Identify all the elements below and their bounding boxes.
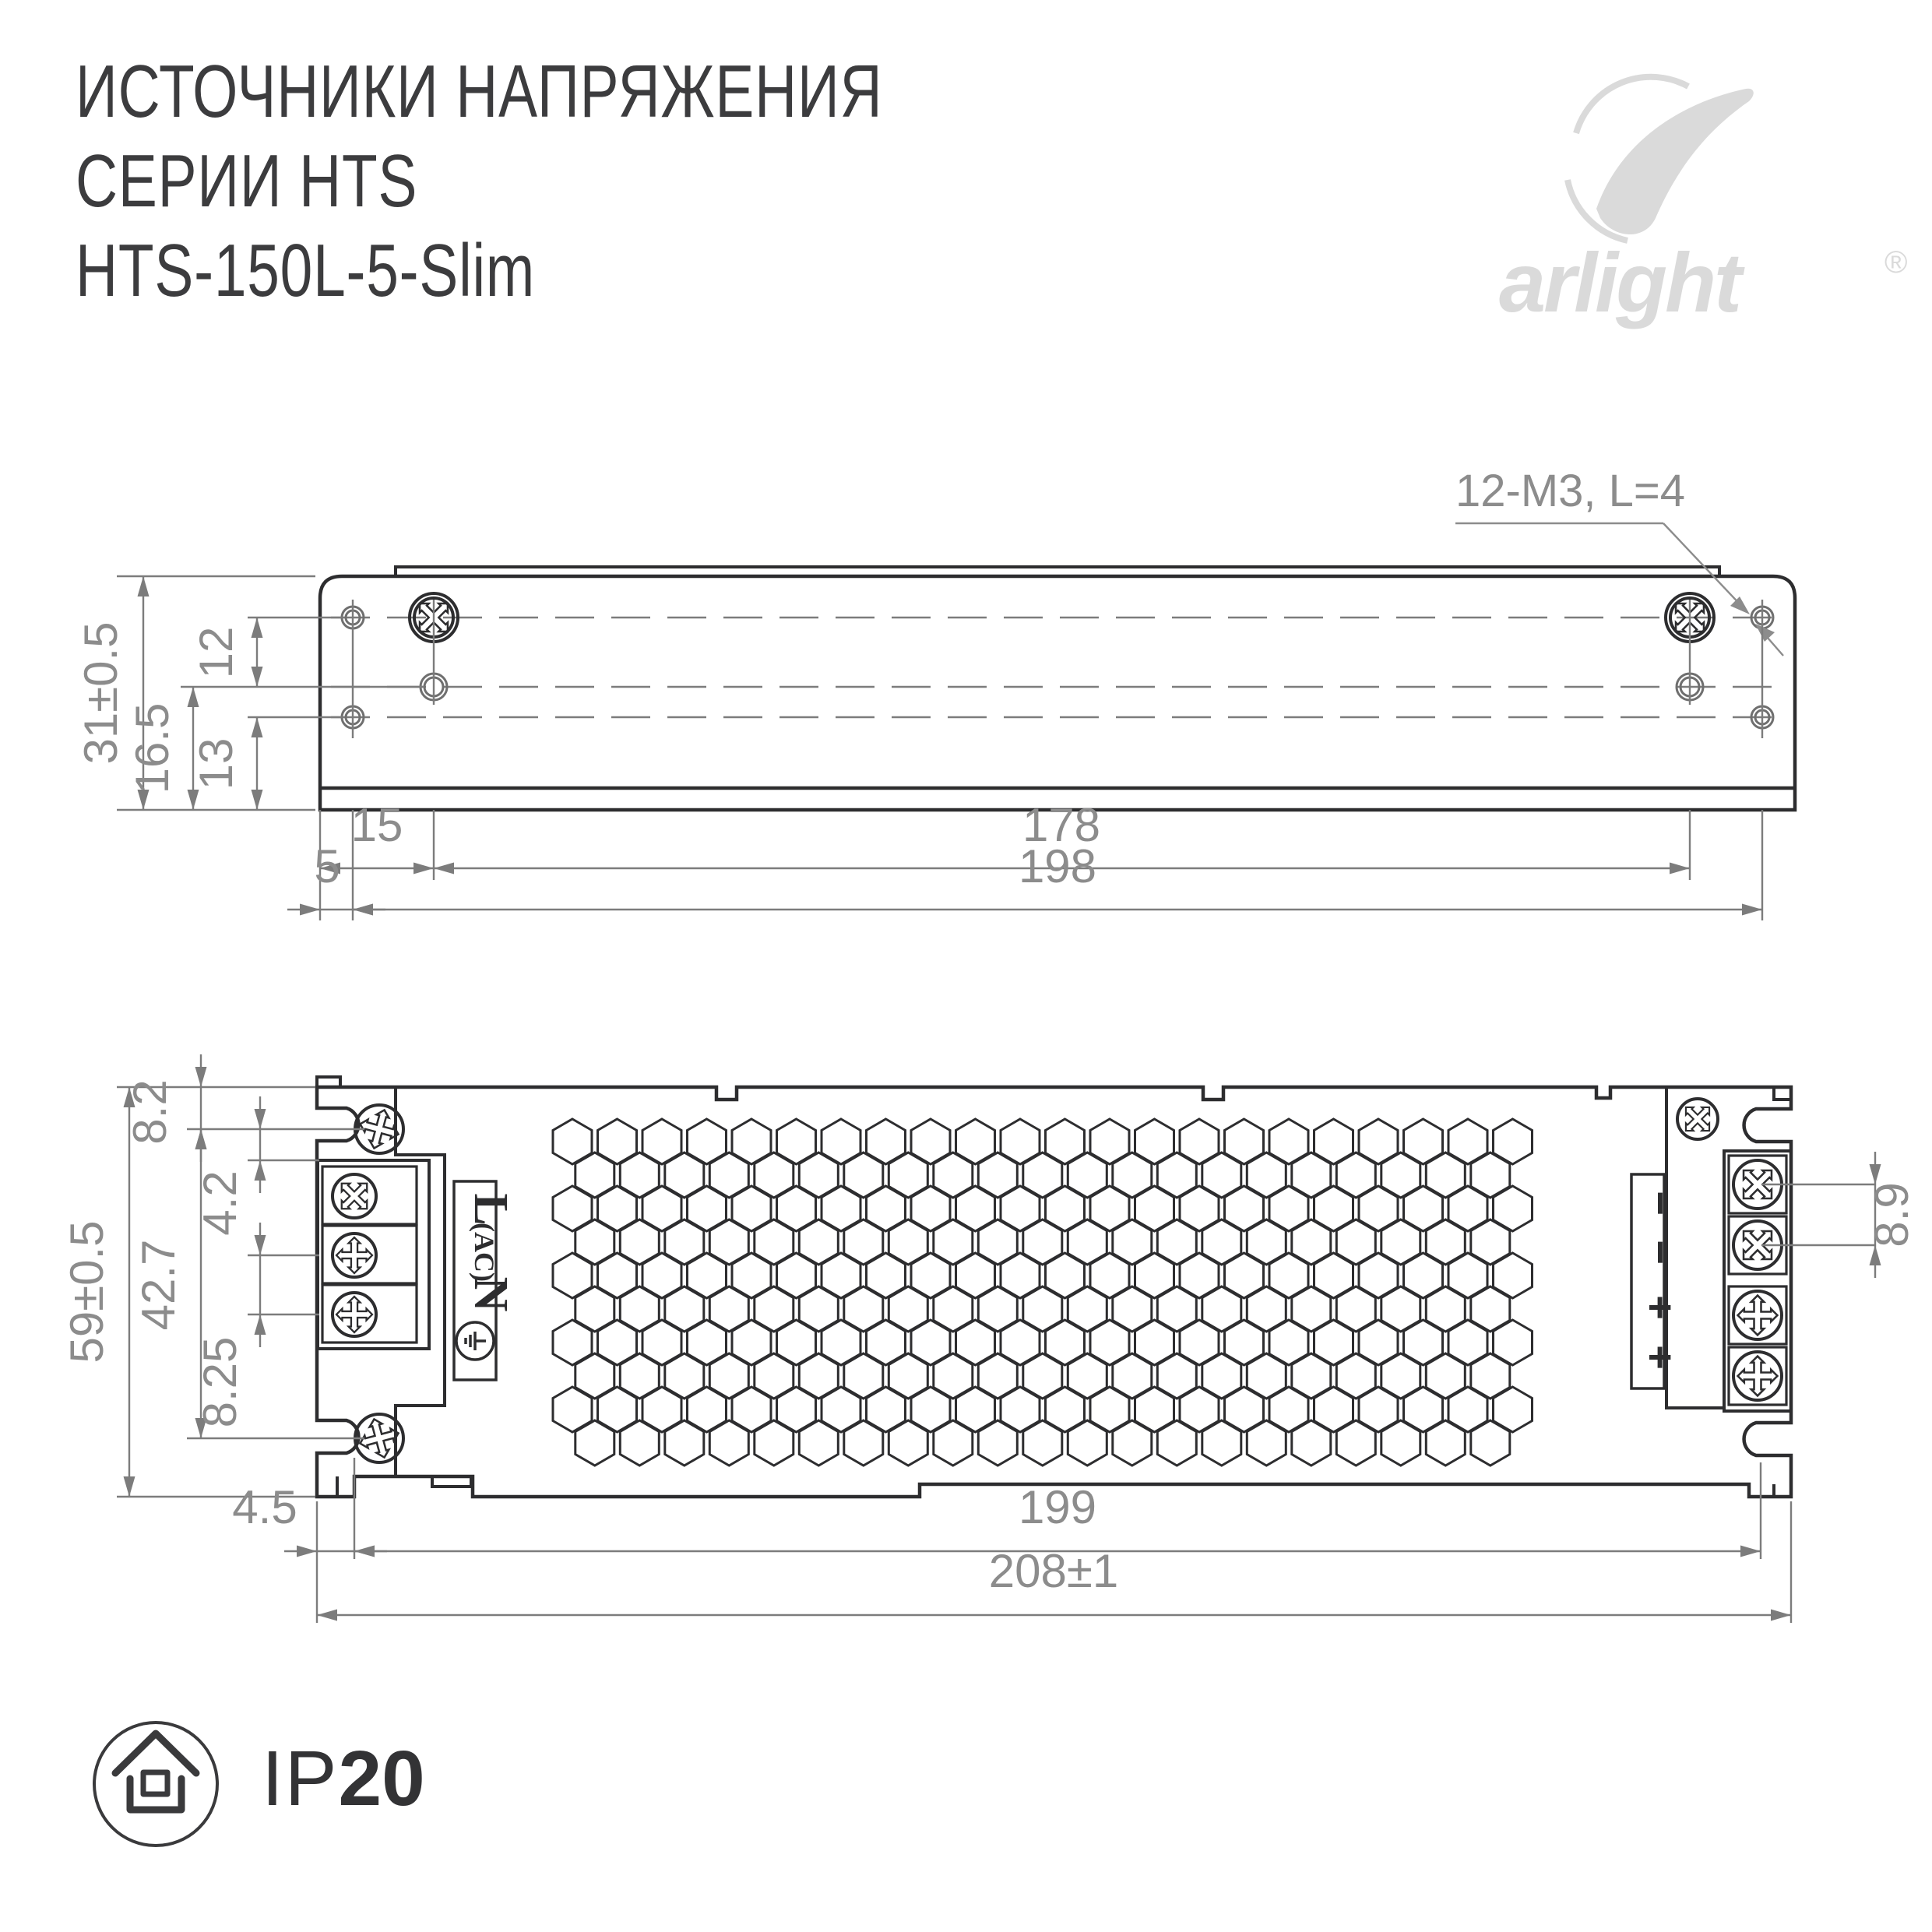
dimension-arrowhead-icon xyxy=(195,1067,207,1087)
dimension-arrowhead-icon xyxy=(1870,1164,1881,1184)
dimension-label: 5 xyxy=(314,840,340,892)
ip-rating-badge: IP20 xyxy=(94,1723,425,1846)
terminal-label-N: N xyxy=(464,1277,517,1312)
arlight-logo: arlight ® xyxy=(1499,77,1907,329)
dimension-arrowhead-icon xyxy=(353,904,373,916)
dimension-label: 199 xyxy=(1019,1481,1096,1533)
dimension-label: 12 xyxy=(190,627,242,679)
dimension-arrowhead-icon xyxy=(252,790,263,810)
dimension-label: 13 xyxy=(190,738,242,790)
dimension-label: 42.7 xyxy=(132,1240,185,1331)
ip-value: 20 xyxy=(338,1735,424,1822)
dimension-arrowhead-icon xyxy=(252,667,263,687)
dimension-label: 198 xyxy=(1019,840,1096,892)
dimension-arrowhead-icon xyxy=(1870,1245,1881,1265)
technical-drawing: arlight ® 12-M3, L=4 xyxy=(0,0,1932,1932)
dimension-arrowhead-icon xyxy=(1742,904,1762,916)
dimension-label: 59±0.5 xyxy=(61,1220,113,1363)
ip-badge-circle xyxy=(94,1723,217,1846)
dimension-arrowhead-icon xyxy=(297,1546,317,1557)
dimension-arrowhead-icon xyxy=(413,863,434,875)
dimension-arrowhead-icon xyxy=(255,1314,266,1335)
dimension-arrowhead-icon xyxy=(255,1160,266,1181)
terminal-label-L: L xyxy=(464,1193,517,1225)
dimension-arrowhead-icon xyxy=(252,717,263,737)
dimension-label: 8.9 xyxy=(1866,1182,1918,1247)
dimension-label: 8.25 xyxy=(194,1337,246,1428)
logo-wordmark: arlight xyxy=(1499,235,1745,329)
logo-swoosh-icon xyxy=(1596,89,1754,234)
logo-registered-mark: ® xyxy=(1884,245,1907,280)
dimension-arrowhead-icon xyxy=(252,618,263,638)
dimension-label: 15 xyxy=(351,799,403,851)
dimension-arrowhead-icon xyxy=(255,1109,266,1129)
polarity-label: + xyxy=(1637,1295,1684,1320)
terminal-label-AC: (AC) xyxy=(469,1223,500,1282)
dimension-arrowhead-icon xyxy=(1771,1610,1791,1621)
dimension-arrowhead-icon xyxy=(124,1476,135,1497)
dimension-arrowhead-icon xyxy=(1740,1546,1761,1557)
top-view-drawing xyxy=(317,1077,1791,1497)
dimension-arrowhead-icon xyxy=(138,576,150,596)
dimension-label: 4.2 xyxy=(194,1170,246,1235)
dimension-label: 208±1 xyxy=(989,1545,1118,1597)
dimension-label: 8.2 xyxy=(124,1079,176,1144)
dimension-label: 16.5 xyxy=(126,703,178,794)
dimension-label: 31±0.5 xyxy=(75,621,127,764)
dimension-arrowhead-icon xyxy=(317,1610,337,1621)
house-icon xyxy=(115,1733,196,1810)
dimension-arrowhead-icon xyxy=(188,687,199,707)
dimension-arrowhead-icon xyxy=(1670,863,1690,875)
dimension-arrowhead-icon xyxy=(255,1235,266,1255)
datasheet-page: ИСТОЧНИКИ НАПРЯЖЕНИЯ СЕРИИ HTS HTS-150L-… xyxy=(0,0,1932,1932)
ip-rating-text: IP20 xyxy=(262,1735,425,1822)
dimension-label: 4.5 xyxy=(232,1481,297,1533)
screw-spec-label: 12-M3, L=4 xyxy=(1455,466,1685,516)
side-view-drawing xyxy=(320,567,1795,810)
polarity-label: − xyxy=(1637,1240,1684,1265)
polarity-label: − xyxy=(1637,1191,1684,1216)
dimension-arrowhead-icon xyxy=(188,790,199,810)
dimension-arrowhead-icon xyxy=(195,1129,207,1149)
dimension-arrowhead-icon xyxy=(434,863,454,875)
case-outline xyxy=(320,576,1795,810)
dimension-arrowhead-icon xyxy=(354,1546,375,1557)
polarity-label: + xyxy=(1637,1345,1684,1370)
ip-prefix: IP xyxy=(262,1735,338,1822)
dimension-arrowhead-icon xyxy=(300,904,320,916)
